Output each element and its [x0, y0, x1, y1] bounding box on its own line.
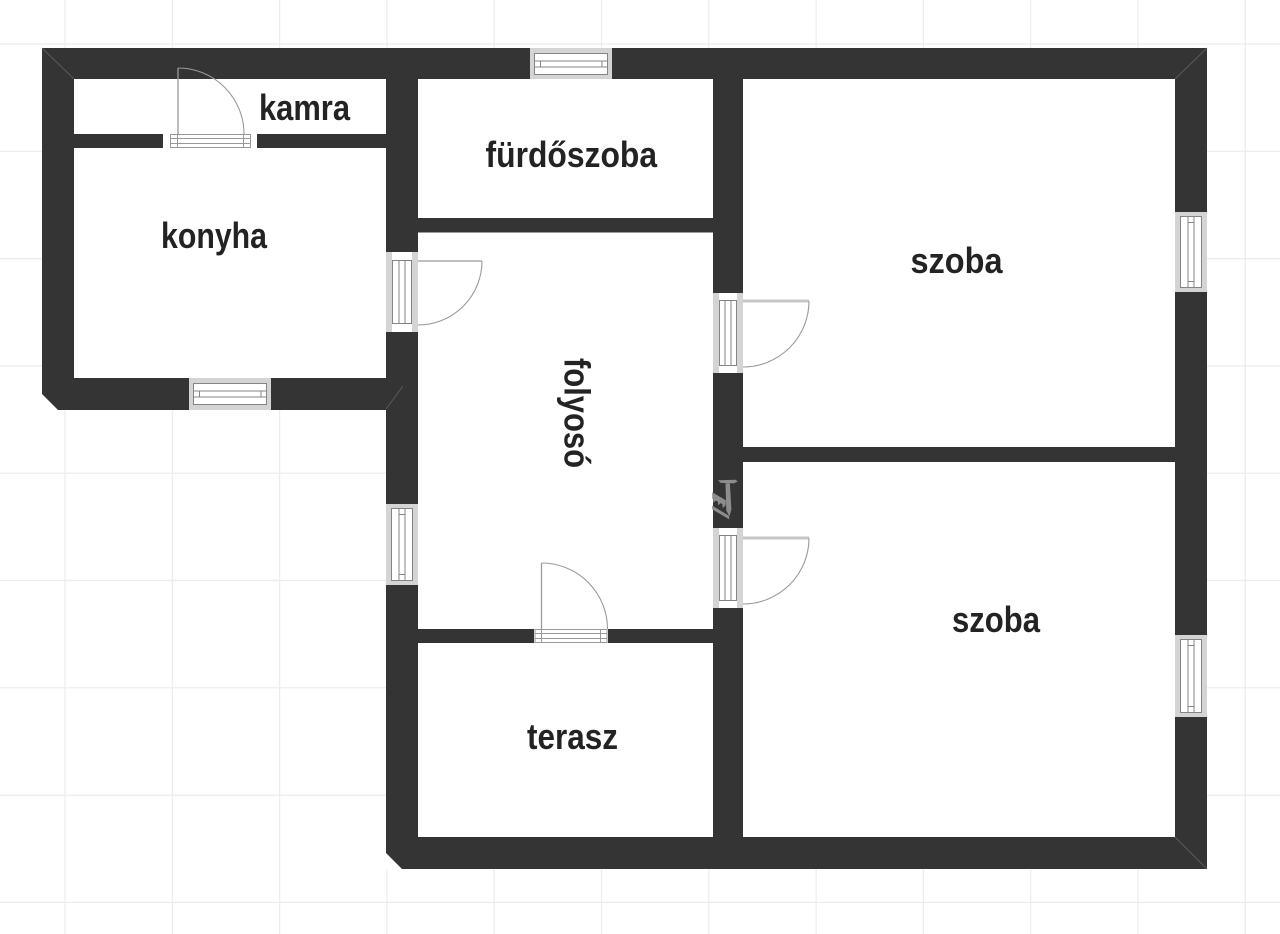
svg-text:konyha: konyha — [161, 215, 268, 256]
svg-text:terasz: terasz — [527, 716, 618, 757]
svg-text:kamra: kamra — [259, 87, 351, 128]
svg-text:folyosó: folyosó — [557, 358, 598, 468]
svg-text:szoba: szoba — [911, 240, 1004, 281]
svg-text:fürdőszoba: fürdőszoba — [486, 134, 658, 175]
svg-text:szoba: szoba — [952, 599, 1041, 640]
